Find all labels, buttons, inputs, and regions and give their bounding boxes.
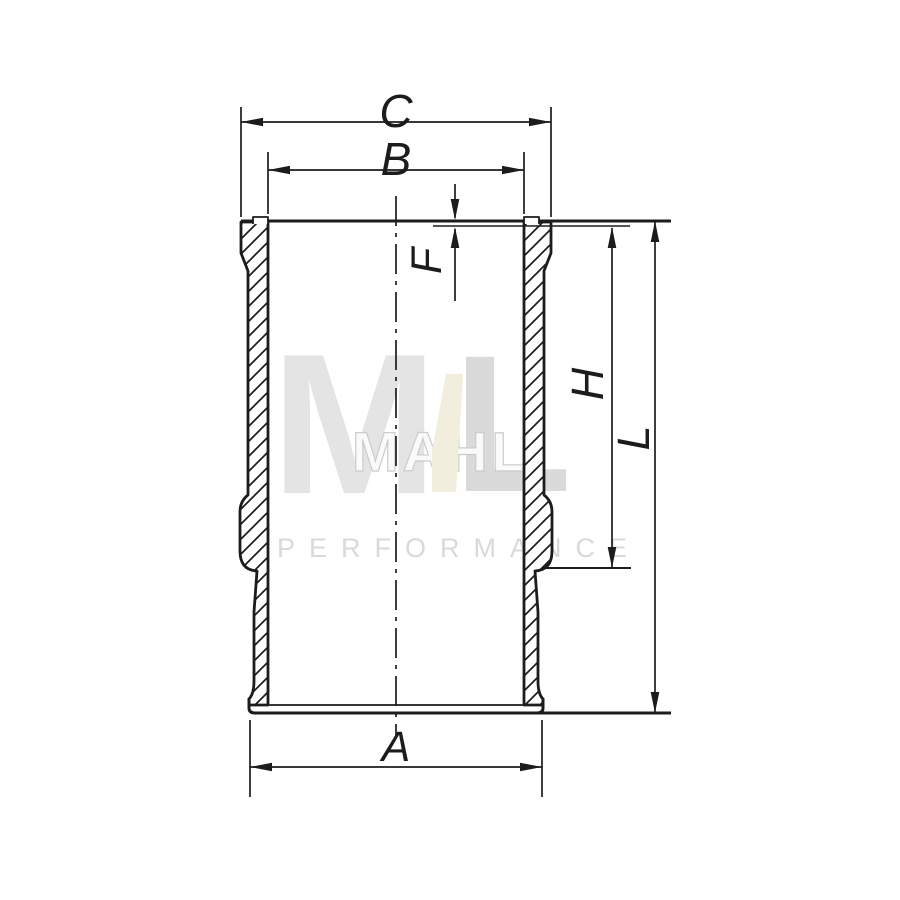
dim-l-arrow-up (651, 221, 660, 242)
dimension-f: F (403, 184, 459, 301)
dim-f-arrow-down (451, 199, 460, 220)
mahle-watermark: M L MAHL PERFORMANCE (271, 313, 641, 563)
dimension-l: L (608, 221, 659, 713)
dim-a-arrow-left (250, 763, 272, 772)
dim-label-b: B (381, 133, 412, 185)
dim-c-arrow-right (529, 118, 551, 127)
liner-top-step-left (253, 217, 268, 224)
dimension-a: A (250, 720, 542, 797)
dim-a-arrow-right (520, 763, 542, 772)
dim-l-arrow-down (651, 692, 660, 713)
watermark-subtitle: PERFORMANCE (277, 533, 641, 563)
dim-label-c: C (379, 85, 413, 137)
dim-label-h: H (562, 367, 613, 400)
liner-left-wall-section (240, 222, 268, 705)
dim-b-arrow-right (502, 166, 524, 175)
liner-top-step-right (524, 217, 539, 224)
dim-f-arrow-up (451, 227, 460, 248)
dim-c-arrow-left (241, 118, 263, 127)
dim-label-l: L (608, 425, 659, 450)
dim-label-a: A (379, 723, 411, 771)
dim-label-f: F (403, 245, 451, 274)
technical-drawing-canvas: M L MAHL PERFORMANCE (0, 0, 900, 900)
drawing-page: M L MAHL PERFORMANCE (0, 0, 900, 900)
dim-b-arrow-left (268, 166, 290, 175)
dim-h-arrow-up (608, 227, 617, 248)
